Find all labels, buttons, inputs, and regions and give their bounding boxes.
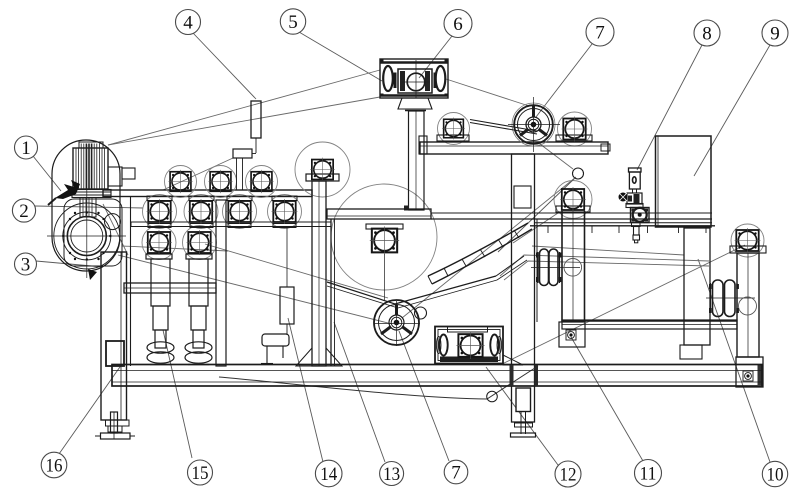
svg-text:16: 16 bbox=[46, 456, 63, 477]
svg-text:1: 1 bbox=[21, 138, 31, 159]
svg-text:14: 14 bbox=[320, 464, 337, 485]
svg-text:4: 4 bbox=[183, 13, 193, 34]
svg-text:3: 3 bbox=[21, 255, 31, 276]
svg-text:13: 13 bbox=[383, 464, 400, 485]
svg-text:2: 2 bbox=[19, 201, 29, 222]
svg-text:10: 10 bbox=[767, 465, 784, 486]
svg-text:9: 9 bbox=[770, 24, 780, 45]
svg-text:11: 11 bbox=[640, 464, 657, 485]
svg-text:6: 6 bbox=[453, 14, 463, 35]
svg-text:7: 7 bbox=[451, 463, 461, 484]
svg-text:8: 8 bbox=[702, 24, 712, 45]
svg-text:15: 15 bbox=[192, 463, 209, 484]
svg-text:7: 7 bbox=[595, 23, 605, 44]
svg-text:5: 5 bbox=[288, 12, 298, 33]
svg-text:12: 12 bbox=[560, 465, 577, 486]
